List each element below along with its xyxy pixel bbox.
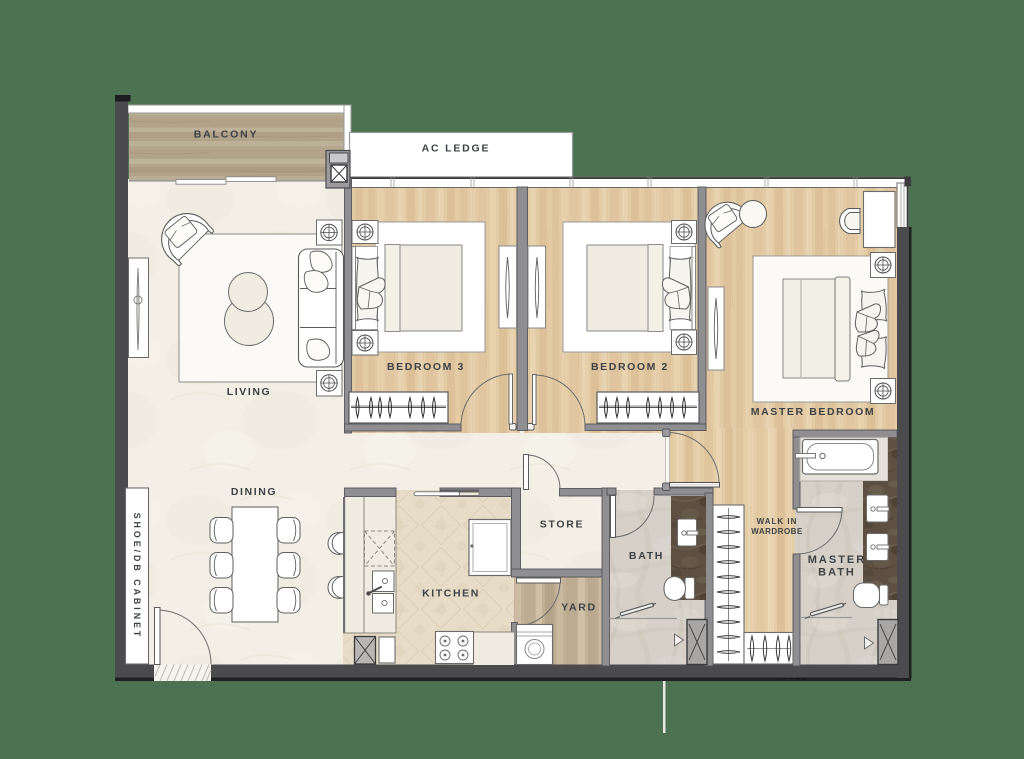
svg-text:KITCHEN: KITCHEN — [422, 588, 480, 600]
svg-text:BATH: BATH — [629, 550, 664, 562]
svg-text:BEDROOM 3: BEDROOM 3 — [387, 361, 465, 373]
svg-text:WARDROBE: WARDROBE — [751, 527, 803, 536]
svg-text:SHOE/DB CABINET: SHOE/DB CABINET — [132, 513, 142, 640]
svg-text:YARD: YARD — [561, 602, 597, 614]
svg-text:MASTER: MASTER — [808, 554, 866, 566]
svg-text:BALCONY: BALCONY — [194, 129, 259, 141]
svg-text:MASTER BEDROOM: MASTER BEDROOM — [751, 406, 875, 418]
svg-text:STORE: STORE — [540, 519, 584, 531]
svg-text:DINING: DINING — [231, 486, 277, 498]
svg-text:BATH: BATH — [818, 567, 856, 579]
svg-text:LIVING: LIVING — [227, 386, 272, 398]
svg-text:AC LEDGE: AC LEDGE — [422, 143, 491, 155]
svg-text:BEDROOM 2: BEDROOM 2 — [591, 361, 669, 373]
svg-text:WALK IN: WALK IN — [757, 517, 798, 526]
